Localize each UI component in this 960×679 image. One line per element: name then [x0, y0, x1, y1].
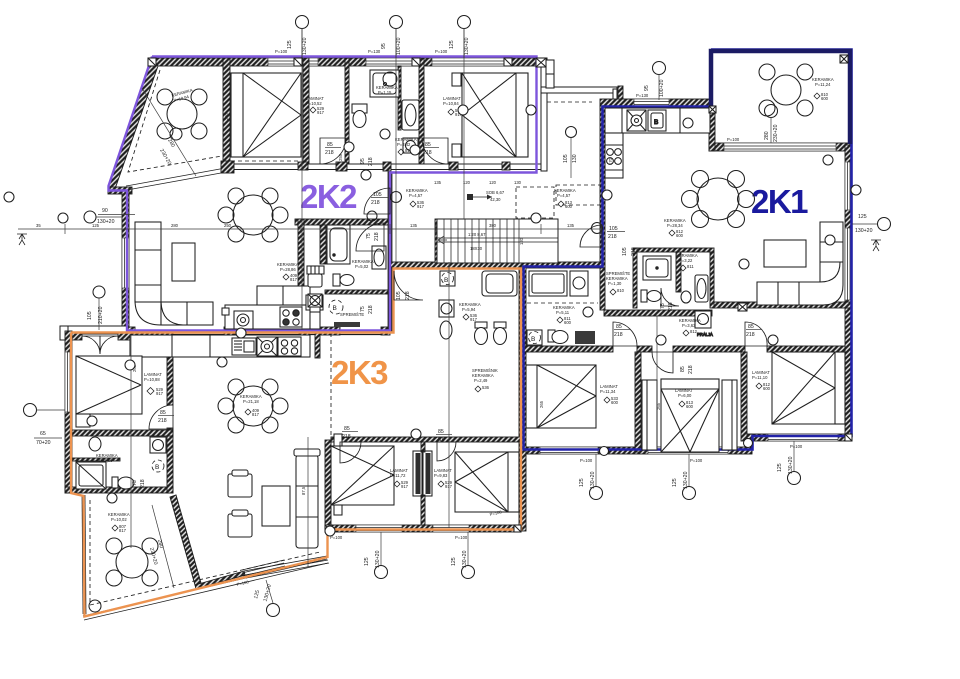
svg-text:380: 380: [489, 223, 497, 228]
svg-text:600: 600: [611, 400, 619, 405]
svg-text:P=3,42: P=3,42: [397, 142, 411, 147]
svg-text:P=11,24: P=11,24: [815, 82, 831, 87]
svg-text:130: 130: [572, 154, 578, 163]
svg-text:P=4,57: P=4,57: [557, 193, 571, 198]
svg-text:P=11,72: P=11,72: [390, 473, 406, 478]
svg-text:218: 218: [368, 157, 374, 166]
svg-text:218: 218: [158, 418, 167, 424]
svg-text:P=28,86: P=28,86: [280, 267, 296, 272]
svg-text:P=9,83: P=9,83: [434, 473, 448, 478]
svg-text:P=130: P=130: [368, 49, 381, 54]
svg-text:125: 125: [777, 463, 783, 472]
svg-text:P=4,57: P=4,57: [409, 193, 423, 198]
svg-text:280: 280: [171, 223, 179, 228]
svg-text:SOB 6,67: SOB 6,67: [486, 190, 505, 195]
svg-text:536: 536: [482, 385, 490, 390]
svg-text:218: 218: [614, 332, 623, 338]
svg-text:P=10,88: P=10,88: [144, 377, 160, 382]
svg-text:265: 265: [539, 400, 544, 408]
svg-text:P=100: P=100: [790, 444, 803, 449]
svg-text:917: 917: [156, 391, 164, 396]
svg-text:B: B: [444, 277, 448, 284]
svg-text:265: 265: [656, 402, 661, 410]
svg-text:218: 218: [342, 434, 351, 440]
svg-text:812: 812: [690, 329, 698, 334]
svg-text:75: 75: [366, 233, 372, 239]
svg-text:P=2,86: P=2,86: [99, 458, 113, 463]
svg-text:P=100: P=100: [455, 535, 468, 540]
svg-text:600: 600: [676, 233, 684, 238]
svg-text:218: 218: [423, 150, 432, 156]
svg-text:218: 218: [405, 291, 411, 300]
svg-text:P=3,22: P=3,22: [679, 258, 693, 263]
svg-text:125: 125: [92, 223, 100, 228]
svg-text:P=100: P=100: [580, 458, 593, 463]
svg-text:85: 85: [425, 142, 431, 148]
svg-text:130+20: 130+20: [302, 37, 308, 55]
svg-text:600: 600: [763, 386, 771, 391]
svg-text:2K1: 2K1: [751, 183, 808, 220]
svg-text:135: 135: [567, 223, 575, 228]
svg-text:42,30: 42,30: [490, 197, 501, 202]
svg-text:P=1,15: P=1,15: [378, 90, 392, 95]
svg-text:135: 135: [410, 223, 418, 228]
svg-text:170: 170: [608, 157, 613, 165]
svg-text:218: 218: [371, 200, 380, 206]
svg-text:105: 105: [622, 247, 628, 256]
svg-text:P=11,10: P=11,10: [752, 375, 768, 380]
svg-text:P=5,11: P=5,11: [556, 310, 570, 315]
svg-text:130+20: 130+20: [590, 471, 596, 489]
svg-text:130+20: 130+20: [683, 471, 689, 489]
svg-text:85: 85: [748, 324, 754, 330]
svg-text:125: 125: [672, 478, 678, 487]
svg-text:125: 125: [449, 40, 455, 49]
svg-text:218: 218: [668, 302, 674, 311]
svg-text:218: 218: [140, 479, 146, 488]
svg-text:125: 125: [858, 214, 867, 220]
svg-text:210+20: 210+20: [98, 306, 104, 324]
svg-text:130+20: 130+20: [788, 456, 794, 474]
svg-text:600: 600: [821, 96, 829, 101]
svg-text:105: 105: [396, 291, 402, 300]
svg-text:70+20: 70+20: [36, 440, 51, 446]
svg-text:100+20: 100+20: [659, 79, 665, 97]
svg-text:PRALJA: PRALJA: [697, 332, 713, 337]
svg-text:135: 135: [434, 180, 442, 185]
svg-text:P=130: P=130: [636, 93, 649, 98]
svg-text:600: 600: [564, 320, 572, 325]
svg-text:85: 85: [680, 366, 686, 372]
svg-text:125: 125: [364, 557, 370, 566]
svg-text:817: 817: [252, 412, 260, 417]
svg-text:95: 95: [381, 43, 387, 49]
svg-text:P=100: P=100: [690, 458, 703, 463]
svg-text:75: 75: [132, 480, 138, 486]
svg-text:250: 250: [224, 223, 232, 228]
svg-text:P=5,94: P=5,94: [462, 307, 476, 312]
svg-text:2K3: 2K3: [331, 354, 388, 391]
svg-text:P=21,18: P=21,18: [243, 399, 259, 404]
svg-text:P=100: P=100: [435, 49, 448, 54]
svg-text:120: 120: [519, 237, 524, 245]
svg-text:90: 90: [102, 208, 108, 214]
svg-text:130+20: 130+20: [462, 550, 468, 568]
svg-text:P=10,84: P=10,84: [443, 101, 459, 106]
svg-text:P=6,00: P=6,00: [678, 393, 692, 398]
svg-text:P=1,30: P=1,30: [608, 281, 622, 286]
svg-text:P=11,34: P=11,34: [600, 389, 616, 394]
svg-text:85: 85: [327, 142, 333, 148]
svg-text:917: 917: [470, 317, 478, 322]
svg-text:230+20: 230+20: [773, 124, 779, 142]
svg-text:B: B: [333, 305, 337, 312]
svg-text:255: 255: [338, 153, 343, 161]
svg-text:105: 105: [563, 154, 569, 163]
svg-text:P=5,02: P=5,02: [355, 264, 369, 269]
svg-text:218: 218: [368, 305, 374, 314]
svg-text:35: 35: [36, 223, 41, 228]
svg-text:85: 85: [160, 410, 166, 416]
svg-text:600: 600: [686, 404, 694, 409]
svg-text:1:20 8,67: 1:20 8,67: [468, 232, 486, 237]
svg-text:125: 125: [287, 40, 293, 49]
svg-text:B: B: [654, 119, 658, 126]
svg-text:130: 130: [514, 180, 522, 185]
svg-text:105: 105: [609, 226, 618, 232]
svg-text:218: 218: [631, 247, 637, 256]
svg-text:917: 917: [417, 204, 425, 209]
svg-text:95: 95: [360, 158, 366, 164]
svg-text:P=100: P=100: [727, 137, 740, 142]
svg-text:120: 120: [489, 180, 497, 185]
svg-text:218: 218: [608, 234, 617, 240]
svg-text:130+20: 130+20: [375, 550, 381, 568]
svg-text:105: 105: [87, 311, 93, 320]
svg-text:B: B: [531, 336, 535, 343]
svg-text:130+20: 130+20: [97, 219, 115, 225]
svg-text:87,5: 87,5: [301, 486, 306, 495]
svg-text:130+20: 130+20: [464, 37, 470, 55]
svg-text:250: 250: [224, 112, 229, 120]
svg-text:817: 817: [119, 528, 127, 533]
svg-text:SPREMIŠTE: SPREMIŠTE: [340, 312, 364, 317]
svg-text:218: 218: [325, 150, 334, 156]
svg-text:85: 85: [438, 429, 444, 435]
svg-text:125: 125: [579, 478, 585, 487]
svg-text:P=28,34: P=28,34: [667, 223, 683, 228]
svg-text:811: 811: [687, 264, 694, 269]
svg-text:218: 218: [746, 332, 755, 338]
svg-text:105: 105: [373, 192, 382, 198]
svg-text:P=10,02: P=10,02: [111, 517, 127, 522]
svg-text:218: 218: [374, 232, 380, 241]
svg-text:810: 810: [617, 288, 625, 293]
svg-text:917: 917: [401, 484, 409, 489]
svg-text:817: 817: [290, 277, 298, 282]
svg-text:P=100: P=100: [275, 49, 288, 54]
svg-text:65: 65: [40, 431, 46, 437]
svg-text:95: 95: [644, 85, 650, 91]
svg-text:218: 218: [436, 437, 445, 443]
svg-text:85: 85: [616, 324, 622, 330]
svg-text:P=2,49: P=2,49: [474, 378, 488, 383]
svg-text:B: B: [155, 464, 159, 471]
svg-text:100+20: 100+20: [396, 37, 402, 55]
svg-text:2K2: 2K2: [300, 178, 357, 215]
svg-text:218: 218: [688, 365, 694, 374]
svg-text:P=3,63: P=3,63: [682, 323, 696, 328]
svg-text:85: 85: [344, 426, 350, 432]
svg-text:130+20: 130+20: [855, 228, 873, 234]
svg-text:125: 125: [451, 557, 457, 566]
svg-text:280: 280: [764, 131, 770, 140]
svg-text:917: 917: [317, 110, 325, 115]
svg-text:18X30: 18X30: [470, 246, 483, 251]
